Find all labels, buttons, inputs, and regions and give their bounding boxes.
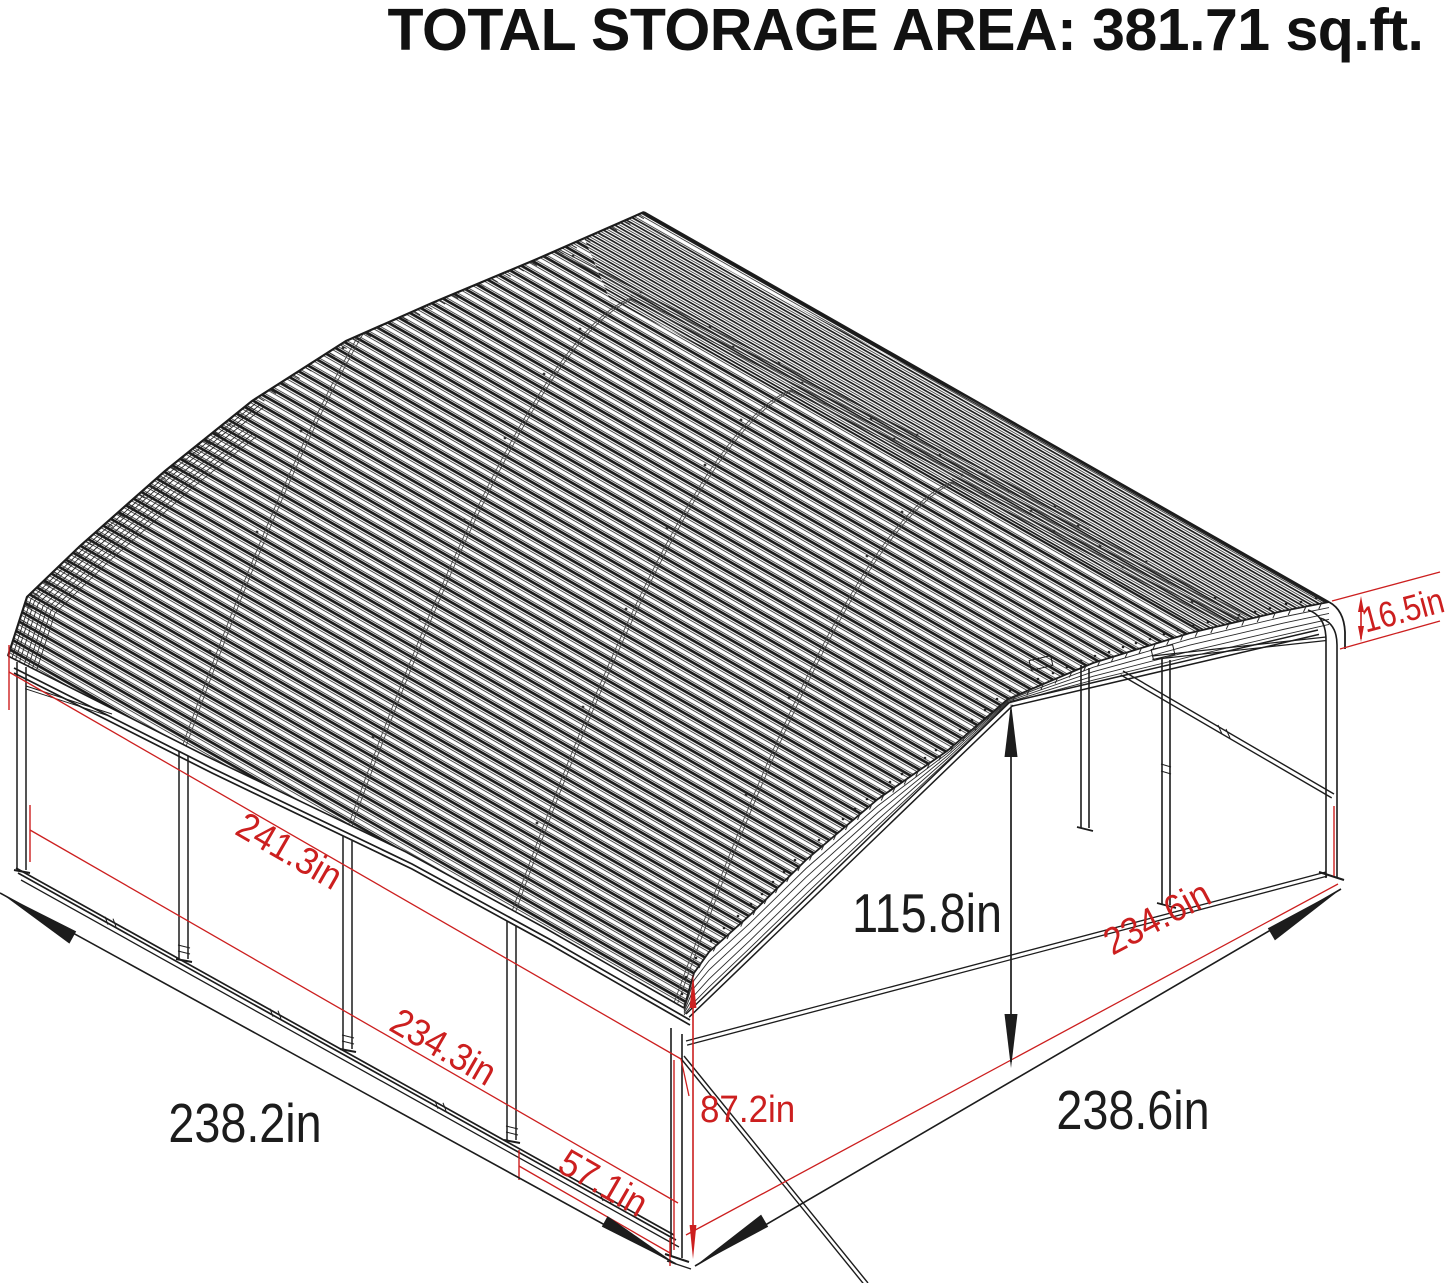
svg-text:238.6in: 238.6in xyxy=(1056,1079,1209,1140)
svg-text:115.8in: 115.8in xyxy=(852,882,1002,943)
svg-text:238.2in: 238.2in xyxy=(168,1092,321,1153)
svg-text:87.2in: 87.2in xyxy=(700,1088,795,1131)
